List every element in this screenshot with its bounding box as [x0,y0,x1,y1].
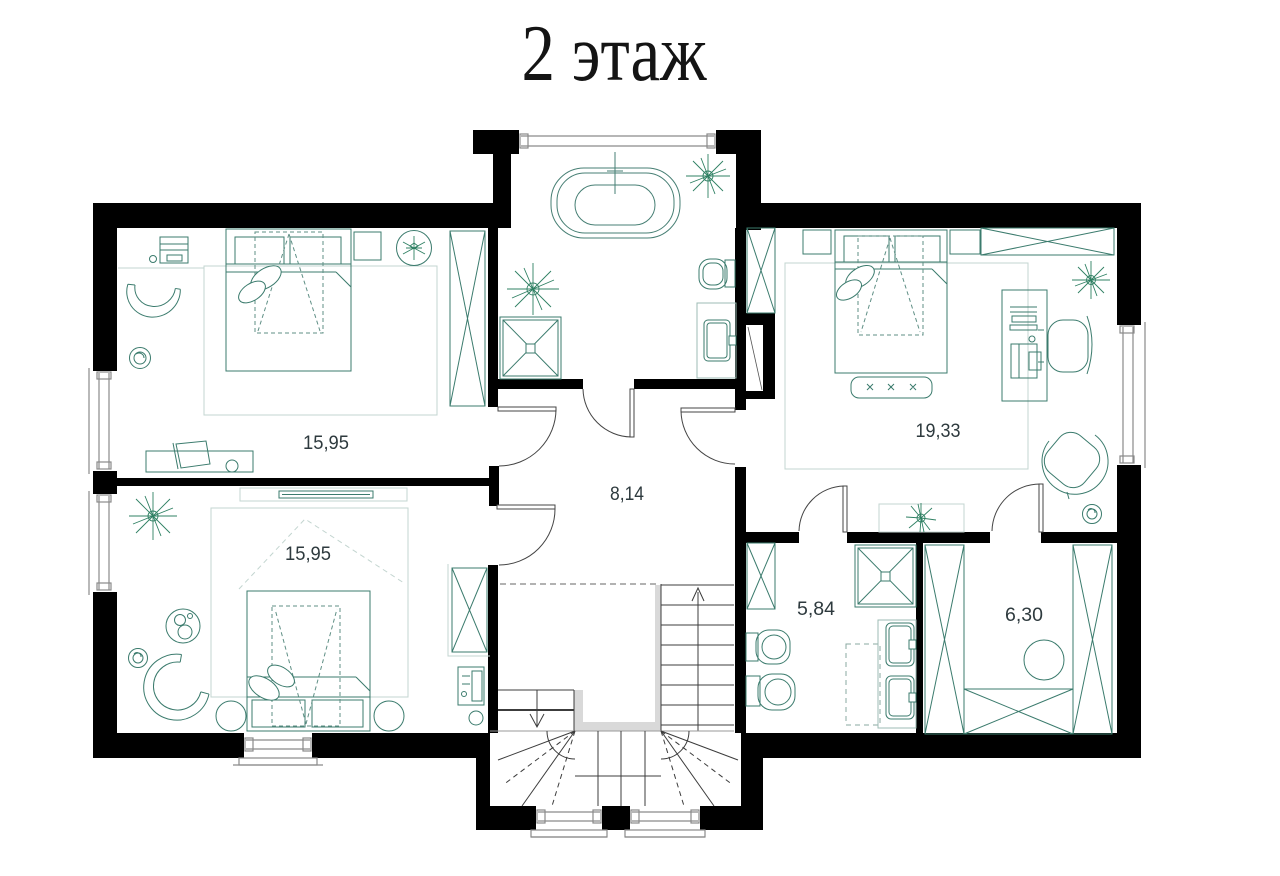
svg-text:15,95: 15,95 [303,433,349,454]
svg-text:5,84: 5,84 [797,599,835,620]
svg-text:8,14: 8,14 [610,484,644,505]
svg-text:19,33: 19,33 [916,421,961,442]
svg-text:6,30: 6,30 [1005,605,1043,626]
svg-text:15,95: 15,95 [285,544,331,565]
svg-text:2 этаж: 2 этаж [522,10,708,98]
